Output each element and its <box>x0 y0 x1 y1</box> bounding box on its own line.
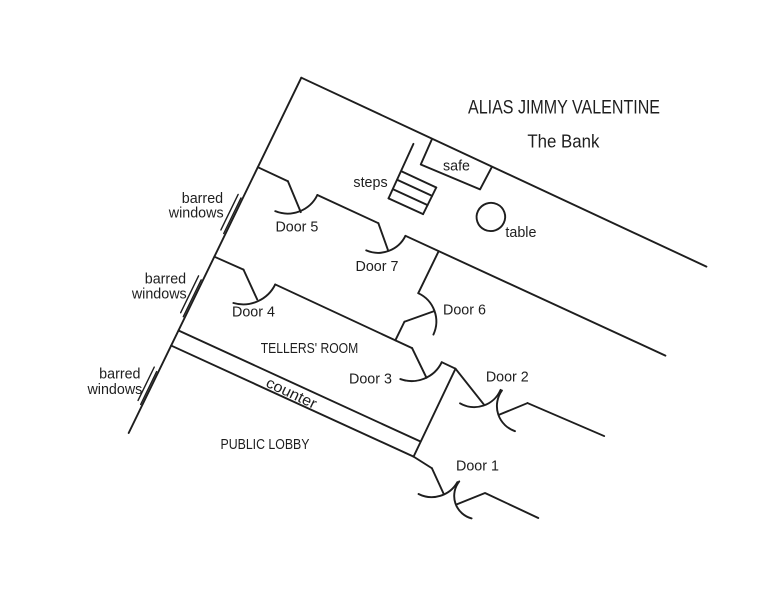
svg-text:windows: windows <box>168 205 224 221</box>
svg-text:Door 6: Door 6 <box>443 303 486 319</box>
svg-text:barred: barred <box>99 366 140 382</box>
svg-text:Door 7: Door 7 <box>356 259 399 275</box>
svg-text:table: table <box>505 225 536 241</box>
svg-text:ALIAS JIMMY VALENTINE: ALIAS JIMMY VALENTINE <box>468 97 660 119</box>
svg-text:Door 1: Door 1 <box>456 458 499 474</box>
svg-text:safe: safe <box>443 159 470 175</box>
svg-text:PUBLIC LOBBY: PUBLIC LOBBY <box>221 437 310 453</box>
svg-text:windows: windows <box>131 287 187 303</box>
svg-text:TELLERS' ROOM: TELLERS' ROOM <box>261 340 359 357</box>
svg-text:Door 4: Door 4 <box>232 304 275 320</box>
svg-text:Door 2: Door 2 <box>486 370 529 386</box>
svg-text:The Bank: The Bank <box>527 131 600 152</box>
svg-text:windows: windows <box>86 382 142 398</box>
svg-text:Door 5: Door 5 <box>275 219 318 235</box>
svg-text:steps: steps <box>353 175 387 191</box>
svg-text:Door 3: Door 3 <box>349 372 392 388</box>
svg-text:counter: counter <box>263 374 319 412</box>
svg-text:barred: barred <box>145 271 186 287</box>
